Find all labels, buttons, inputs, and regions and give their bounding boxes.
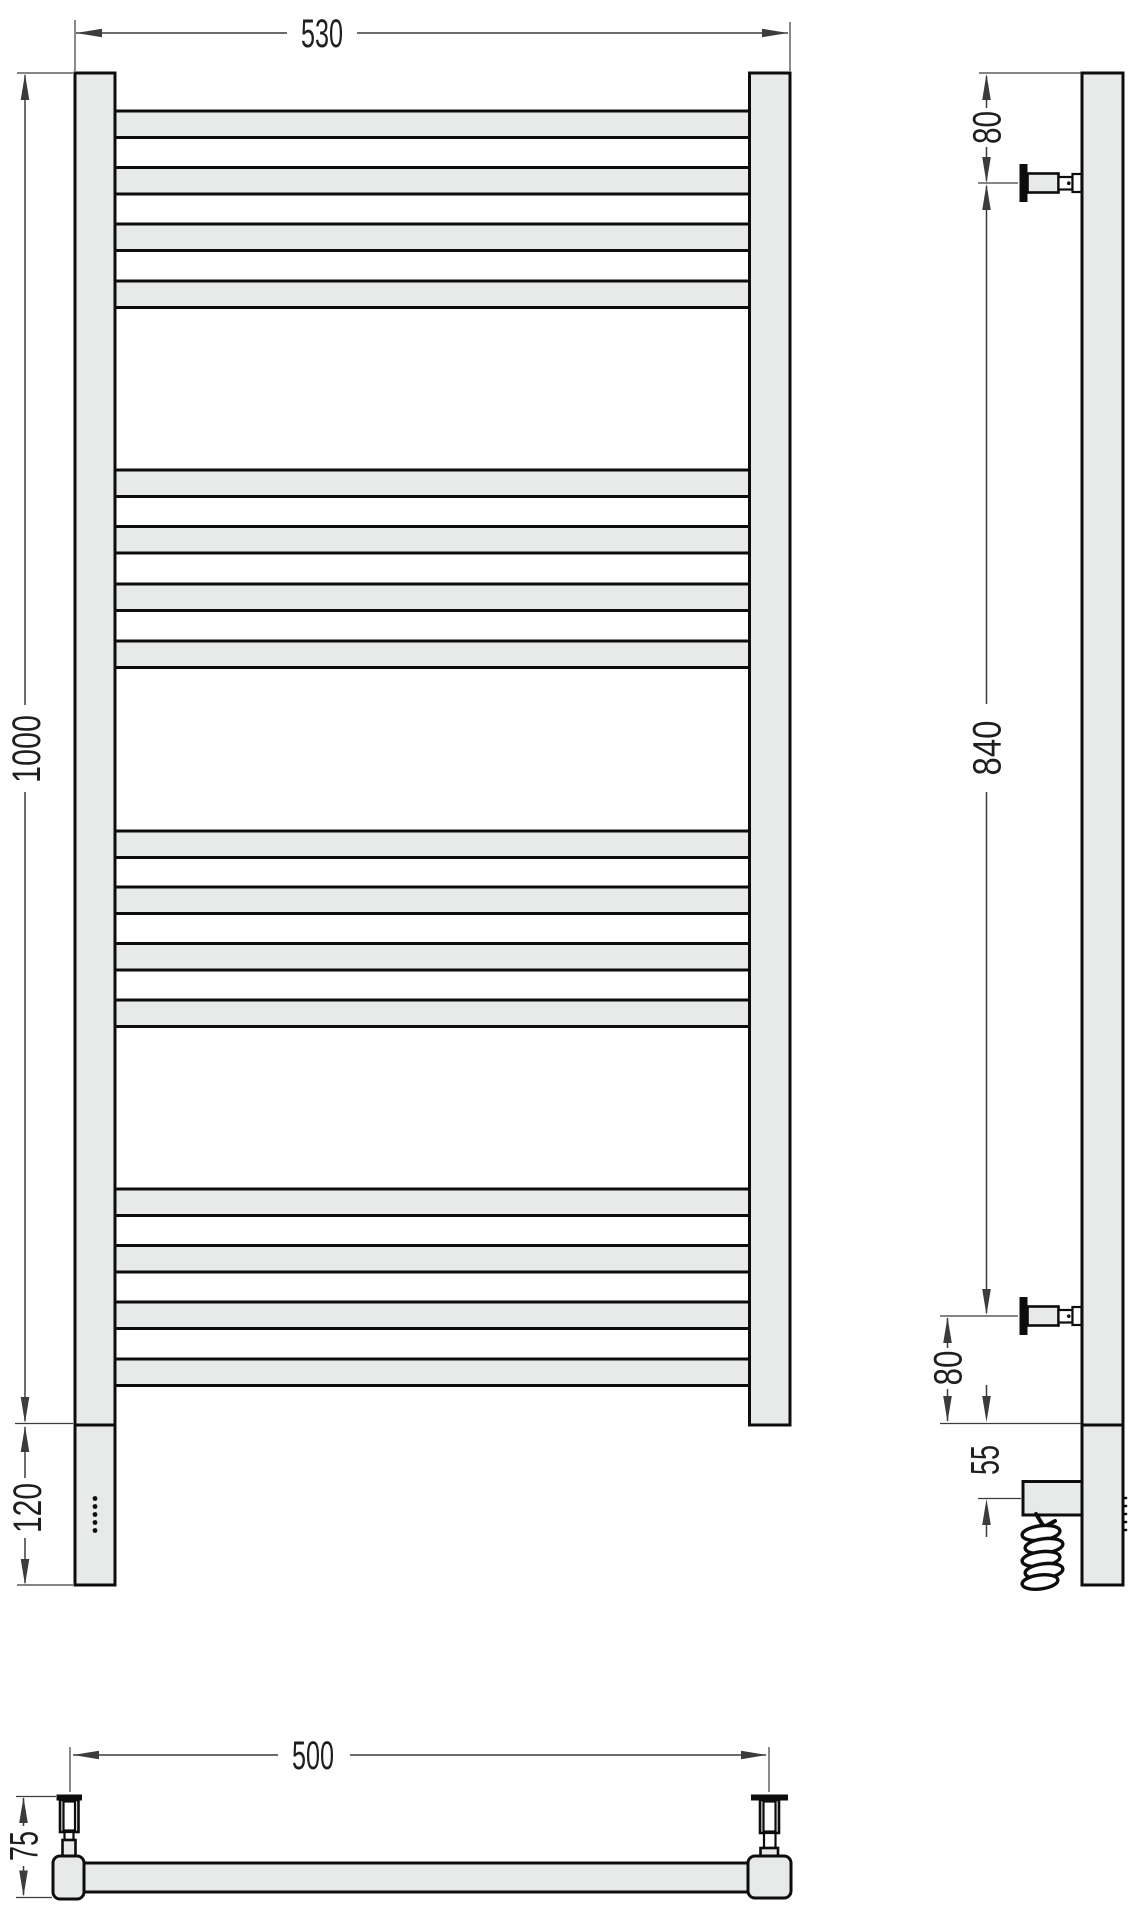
plan-top-rung — [83, 1863, 749, 1892]
side-post — [1082, 73, 1123, 1425]
dim-plan-depth: 75 — [3, 1797, 57, 1898]
dim-label-plan-spacing: 500 — [292, 1734, 334, 1778]
dim-side-heater-offset: 55 — [964, 1385, 1022, 1537]
dim-front-width: 530 — [75, 12, 790, 71]
corner-foot — [748, 1856, 791, 1898]
bracket-body — [1028, 1307, 1059, 1326]
dim-label-plan-depth: 75 — [3, 1831, 47, 1861]
arrowhead — [21, 1426, 30, 1452]
arrowhead — [21, 74, 30, 100]
dim-front-bottom-section: 120 — [6, 1426, 73, 1585]
tick — [1123, 1513, 1127, 1515]
rung — [114, 1189, 751, 1216]
dot — [93, 1520, 98, 1525]
dim-label-front-height: 1000 — [5, 715, 49, 783]
arrowhead — [19, 1797, 28, 1823]
arrowhead — [19, 1871, 28, 1897]
tick — [1123, 1521, 1127, 1523]
dot — [93, 1496, 98, 1501]
arrowhead — [943, 1396, 952, 1422]
bracket-inner — [764, 1802, 776, 1832]
dim-side-bracket-span: 840 — [940, 184, 1018, 1316]
rung — [114, 470, 751, 497]
arrowhead — [741, 1751, 767, 1759]
arrowhead — [21, 1559, 30, 1585]
arrowhead — [21, 1397, 30, 1423]
dim-plan-spacing: 500 — [70, 1734, 769, 1792]
bracket-inner — [64, 1802, 76, 1831]
dim-label-side-span: 840 — [966, 721, 1010, 776]
side-view — [1020, 73, 1128, 1591]
tick — [1123, 1497, 1127, 1499]
rung — [114, 831, 751, 858]
bracket-block — [1073, 1307, 1082, 1325]
dim-side-bottom-offset: 80 — [927, 1317, 1082, 1424]
dim-label-side-heater-offset: 55 — [964, 1445, 1008, 1475]
arrowhead — [762, 29, 788, 37]
dot — [93, 1512, 98, 1517]
plan-bracket-right — [748, 1795, 791, 1899]
front-view — [75, 73, 790, 1585]
arrowhead — [76, 29, 102, 37]
front-right-post — [750, 73, 791, 1425]
rung — [114, 111, 751, 138]
bracket-body — [1028, 174, 1059, 193]
arrowhead — [982, 184, 991, 210]
rung — [114, 1359, 751, 1386]
wall-bracket-top — [1020, 164, 1082, 202]
dot — [93, 1528, 98, 1533]
rung — [114, 1302, 751, 1329]
rung — [114, 224, 751, 251]
tick — [1123, 1529, 1127, 1531]
dim-label-front-bottom: 120 — [6, 1483, 50, 1533]
dim-label-side-bottom-offset: 80 — [927, 1351, 971, 1386]
arrowhead — [982, 74, 991, 100]
dim-label-side-top-offset: 80 — [966, 111, 1010, 144]
arrowhead — [982, 1499, 991, 1525]
bracket-block — [63, 1840, 76, 1856]
plan-view — [53, 1795, 791, 1900]
rung — [114, 168, 751, 195]
front-rungs — [114, 111, 751, 1386]
rung — [114, 584, 751, 611]
rung — [114, 944, 751, 971]
rung — [114, 1246, 751, 1273]
plan-bracket-left — [53, 1795, 84, 1900]
side-heater-housing — [1082, 1425, 1123, 1585]
rung — [114, 887, 751, 914]
heater-element-box — [1023, 1482, 1082, 1516]
bracket-pin — [1067, 1314, 1071, 1318]
rung — [114, 527, 751, 554]
dim-label-front-width: 530 — [301, 12, 343, 56]
arrowhead — [943, 1317, 952, 1343]
technical-drawing: 530 1000 120 — [0, 0, 1146, 1920]
tick — [1123, 1505, 1127, 1507]
dot — [93, 1504, 98, 1509]
arrowhead — [982, 1396, 991, 1422]
arrowhead — [982, 1289, 991, 1315]
bracket-pin — [1067, 181, 1071, 185]
front-left-post — [75, 73, 115, 1425]
rung — [114, 1000, 751, 1027]
bracket-block — [1073, 174, 1082, 192]
corner-foot — [53, 1856, 84, 1899]
wall-bracket-bottom — [1020, 1297, 1082, 1335]
bracket-neck — [764, 1833, 776, 1848]
rung — [114, 281, 751, 308]
dim-front-height: 1000 — [5, 73, 73, 1424]
arrowhead — [982, 157, 991, 183]
arrowhead — [73, 1751, 99, 1759]
rung — [114, 641, 751, 668]
coiled-cable — [1021, 1514, 1063, 1591]
